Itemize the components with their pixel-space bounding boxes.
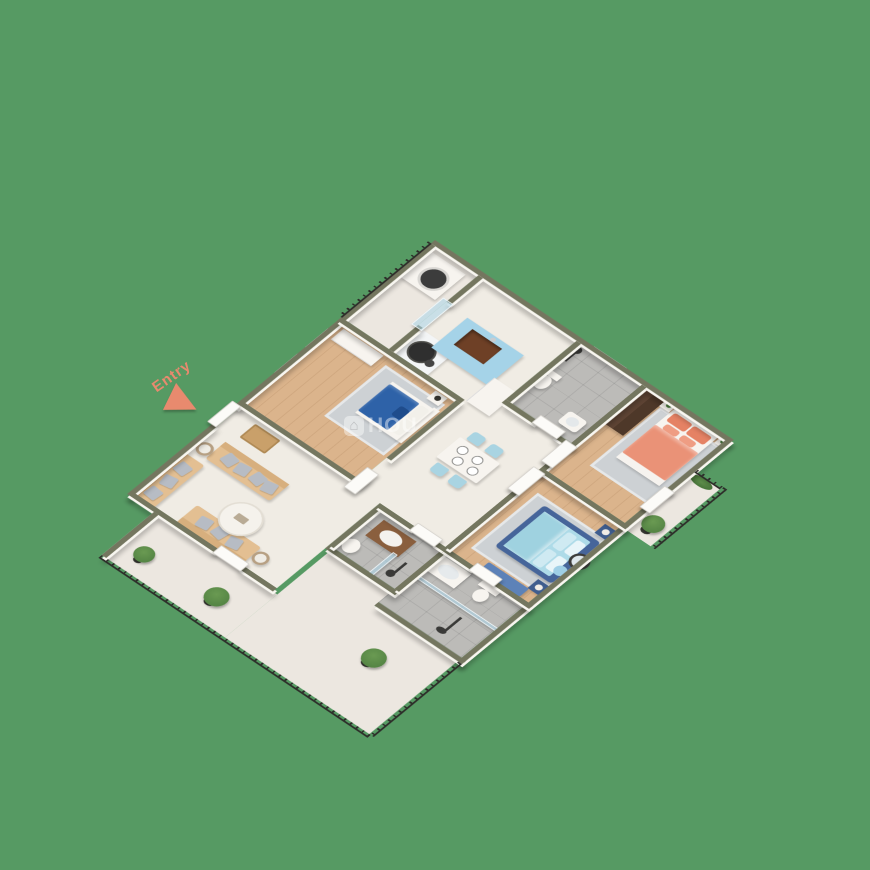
plate [469,454,486,467]
plate [449,455,466,468]
entry-arrow-icon [163,383,203,423]
watermark-text: HOU [368,414,418,438]
house-icon: ⌂ [344,416,364,436]
stool-cushion [252,552,269,565]
floor-plan-stage: Entry ⌂ HOU [0,0,870,870]
nightstand-plant [433,395,443,402]
plate [454,444,471,457]
table-decor [233,513,249,525]
plate [464,465,481,478]
stool-cushion [196,443,213,456]
sink-basin [563,415,581,429]
watermark: ⌂ HOU [344,414,418,438]
